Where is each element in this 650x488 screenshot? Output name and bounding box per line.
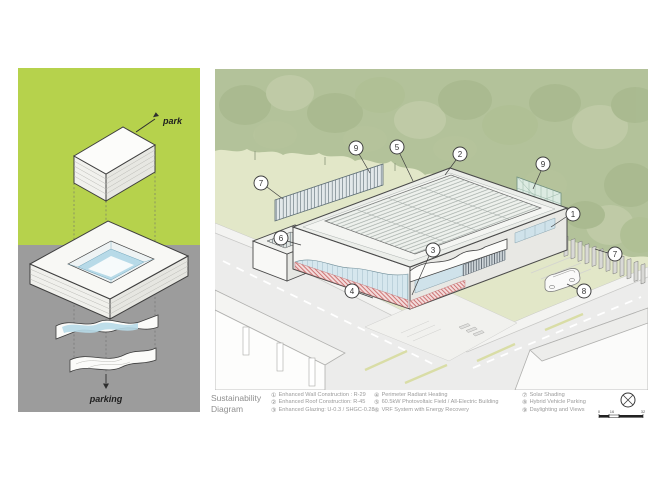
legend-item-5-text: 60.5kW Photovoltaic Field / All-Electric… (382, 399, 499, 406)
legend-item-8: ⑧ Hybrid Vehicle Parking (522, 399, 586, 406)
legend-item-5-num: ⑤ (374, 399, 380, 406)
legend-item-2-text: Enhanced Roof Construction: R-45 (279, 399, 366, 406)
legend-item-1-num: ① (271, 392, 277, 399)
legend-item-7-text: Solar Shading (530, 392, 565, 399)
legend-item-3-num: ③ (271, 407, 277, 414)
sustainability-diagram-sheet: park (0, 0, 650, 488)
legend-item-7: ⑦ Solar Shading (522, 392, 586, 399)
legend-item-4-text: Perimeter Radiant Heating (382, 392, 448, 399)
legend-item-1-text: Enhanced Wall Construction : R-29 (279, 392, 366, 399)
legend-item-2: ② Enhanced Roof Construction: R-45 (271, 399, 375, 406)
callout-7-left-num: 7 (259, 179, 264, 188)
callout-5-num: 5 (395, 143, 400, 152)
legend-item-3-text: Enhanced Glazing: U-0.3 / SHGC-0.28 (279, 407, 375, 414)
legend-column-3: ⑦ Solar Shading ⑧ Hybrid Vehicle Parking… (522, 392, 586, 414)
parking-label: parking (89, 394, 123, 404)
callout-9-right-num: 9 (541, 160, 546, 169)
legend-column-2: ④ Perimeter Radiant Heating ⑤ 60.5kW Pho… (374, 392, 498, 414)
legend-item-8-text: Hybrid Vehicle Parking (530, 399, 586, 406)
legend-item-3: ③ Enhanced Glazing: U-0.3 / SHGC-0.28 (271, 407, 375, 414)
callout-3-num: 3 (431, 246, 436, 255)
callout-1-num: 1 (571, 210, 576, 219)
legend-column-1: ① Enhanced Wall Construction : R-29 ② En… (271, 392, 375, 414)
callout-9-left-num: 9 (354, 144, 359, 153)
legend-item-8-num: ⑧ (522, 399, 528, 406)
legend-item-6: ⑥ VRF System with Energy Recovery (374, 407, 498, 414)
scale-label-0: 0 (598, 409, 601, 414)
legend-item-1: ① Enhanced Wall Construction : R-29 (271, 392, 375, 399)
callout-2-num: 2 (458, 150, 463, 159)
north-arrow-icon (621, 393, 635, 407)
scale-label-32: 32 (641, 409, 646, 414)
legend-item-2-num: ② (271, 399, 277, 406)
callout-6-num: 6 (279, 234, 284, 243)
right-diagram-panel: 1 2 3 4 5 6 7 7 8 9 9 (215, 65, 648, 390)
legend-item-5: ⑤ 60.5kW Photovoltaic Field / All-Electr… (374, 399, 498, 406)
legend-item-9: ⑨ Daylighting and Views (522, 407, 586, 414)
legend-item-6-num: ⑥ (374, 407, 380, 414)
legend-item-6-text: VRF System with Energy Recovery (382, 407, 469, 414)
legend-item-7-num: ⑦ (522, 392, 528, 399)
left-diagram-panel: park (18, 68, 200, 412)
scale-label-16: 16 (610, 409, 615, 414)
park-label: park (162, 116, 183, 126)
legend-item-9-text: Daylighting and Views (530, 407, 585, 414)
legend: Sustainability Diagram ① Enhanced Wall C… (211, 391, 648, 435)
legend-item-4-num: ④ (374, 392, 380, 399)
scale-bar: 0 16 32 (598, 409, 646, 418)
callout-7-right-num: 7 (613, 250, 618, 259)
callout-4-num: 4 (350, 287, 355, 296)
legend-title: Sustainability Diagram (211, 393, 275, 415)
callout-8-num: 8 (582, 287, 587, 296)
north-scale-block: 0 16 32 (596, 392, 648, 424)
legend-item-4: ④ Perimeter Radiant Heating (374, 392, 498, 399)
legend-item-9-num: ⑨ (522, 407, 528, 414)
